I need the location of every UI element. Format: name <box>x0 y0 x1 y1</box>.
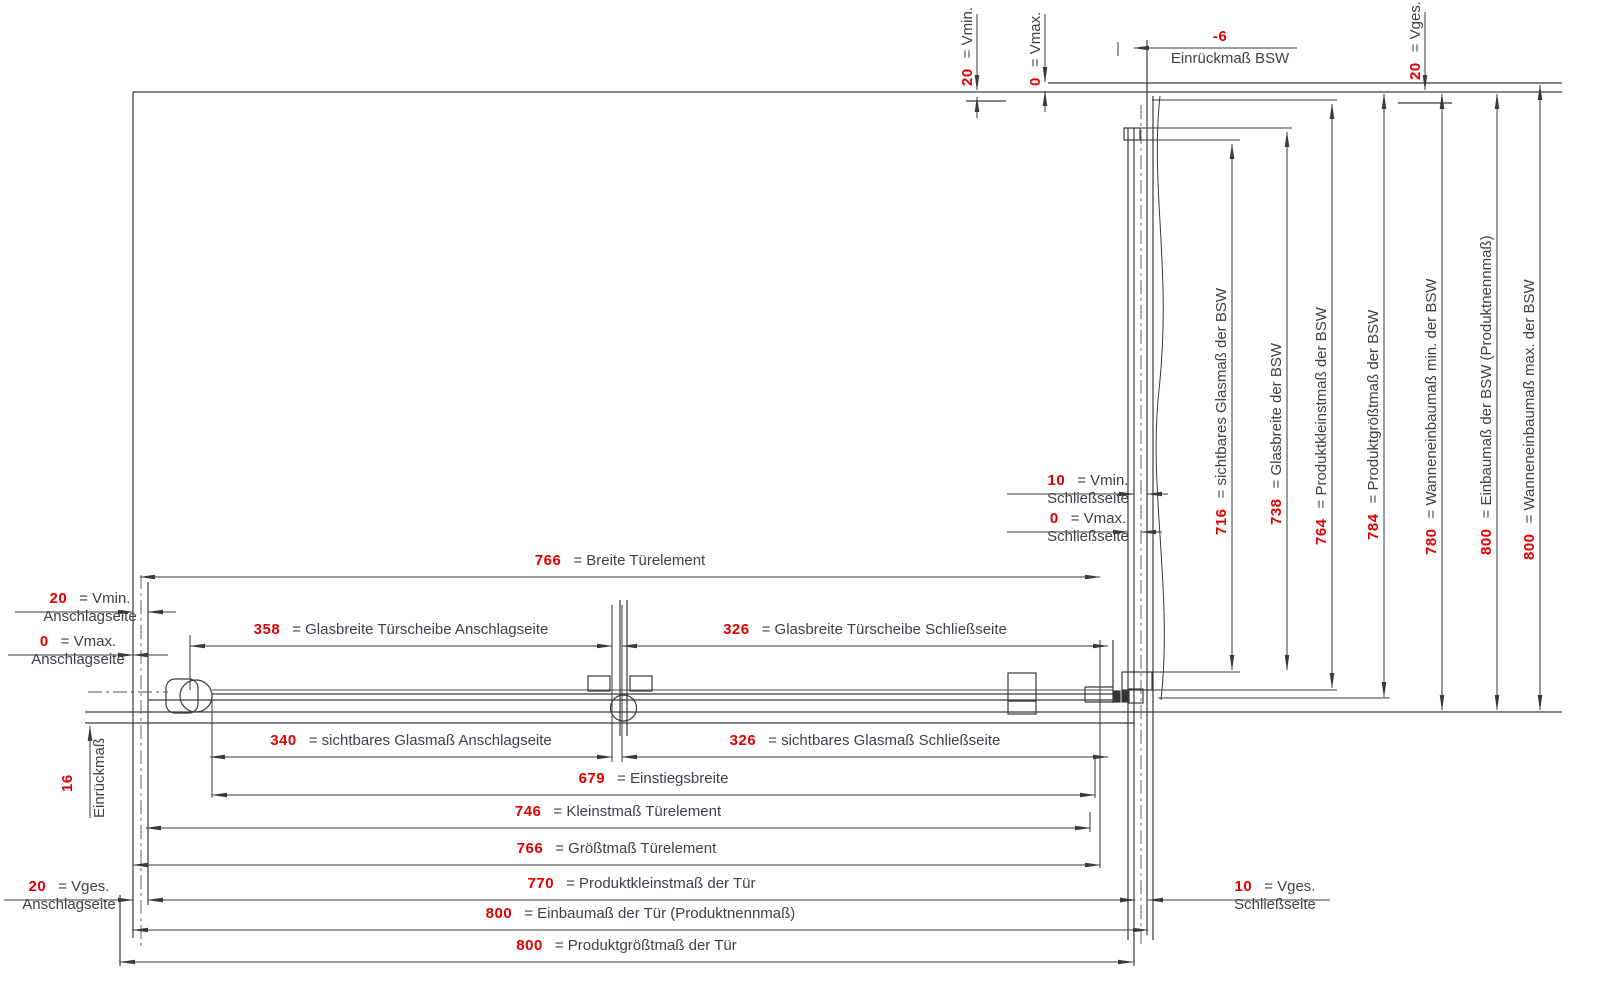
dim-sichtbares-glasmass-anschlagseite: 340= sichtbares Glasmaß Anschlagseite <box>210 732 612 749</box>
dim-einrueckmass-value: 16 <box>60 774 76 792</box>
dim-glasbreite-schliessseite: 326= Glasbreite Türscheibe Schließseite <box>622 621 1108 638</box>
dim-label: = Vmax. <box>1027 12 1044 67</box>
dim-value: 20 <box>959 68 976 86</box>
dim-value: 20 <box>1407 62 1424 80</box>
dim-bsw-wanneneinbaumass-min: 780= Wanneneinbaumaß min. der BSW <box>1424 278 1440 555</box>
dim-breite-tuerelement: 766= Breite Türelement <box>140 552 1100 569</box>
dim-einbaumass-tuer: 800= Einbaumaß der Tür (Produktnennmaß) <box>133 905 1148 922</box>
dim-bsw-einbaumass: 800= Einbaumaß der BSW (Produktnennmaß) <box>1479 235 1495 555</box>
dim-top-vges: 20= Vges. <box>1408 1 1424 80</box>
dim-vmax-schliessseite: 0= Vmax. Schließseite <box>998 510 1178 546</box>
adjustment-dimension-lines <box>4 12 1425 900</box>
dim-sichtbares-glasmass-schliessseite: 326= sichtbares Glasmaß Schließseite <box>622 732 1108 749</box>
dim-produktkleinstmass-tuer: 770= Produktkleinstmaß der Tür <box>148 875 1135 892</box>
dim-bsw-wanneneinbaumass-max: 800= Wanneneinbaumaß max. der BSW <box>1522 279 1538 560</box>
dim-einrueckmass-label: Einrückmaß <box>92 738 108 818</box>
dim-einrueckmass-bsw-label: Einrückmaß BSW <box>1150 50 1310 68</box>
wall-outline <box>85 83 1562 966</box>
dim-kleinstmass-tuerelement: 746= Kleinstmaß Türelement <box>146 803 1090 820</box>
dim-vmin-schliessseite: 10= Vmin. Schließseite <box>998 472 1178 508</box>
dim-vmax-anschlagseite: 0= Vmax. Anschlagseite <box>8 633 148 669</box>
dim-top-vmax: 0= Vmax. <box>1028 12 1044 86</box>
dim-label: = Vmin. <box>959 7 976 58</box>
dim-produktgroesstmass-tuer: 800= Produktgrößtmaß der Tür <box>120 937 1133 954</box>
dim-vmin-anschlagseite: 20= Vmin. Anschlagseite <box>15 590 165 626</box>
dim-value: 0 <box>1027 77 1044 86</box>
dim-bsw-produktgroesstmass: 784= Produktgrößtmaß der BSW <box>1366 310 1382 540</box>
dim-einrueckmass-bsw-value: -6 <box>1160 28 1280 46</box>
dim-groesstmass-tuerelement: 766= Größtmaß Türelement <box>133 840 1100 857</box>
dim-glasbreite-anschlagseite: 358= Glasbreite Türscheibe Anschlagseite <box>190 621 612 638</box>
dim-bsw-sichtbares-glasmass: 716= sichtbares Glasmaß der BSW <box>1214 288 1230 535</box>
dim-bsw-glasbreite: 738= Glasbreite der BSW <box>1269 343 1285 525</box>
dim-einstiegsbreite: 679= Einstiegsbreite <box>212 770 1095 787</box>
dim-label: = Vges. <box>1407 1 1424 52</box>
dim-top-vmin: 20= Vmin. <box>960 7 976 86</box>
center-lines <box>88 105 1141 950</box>
technical-drawing-page: 20= Vmin. 0= Vmax. 20= Vges. -6 Einrückm… <box>0 0 1598 992</box>
dim-vges-anschlagseite: 20= Vges. Anschlagseite <box>4 878 134 914</box>
dim-bsw-produktkleinstmass: 764= Produktkleinstmaß der BSW <box>1314 307 1330 545</box>
dim-vges-schliessseite: 10= Vges. Schließseite <box>1205 878 1345 914</box>
